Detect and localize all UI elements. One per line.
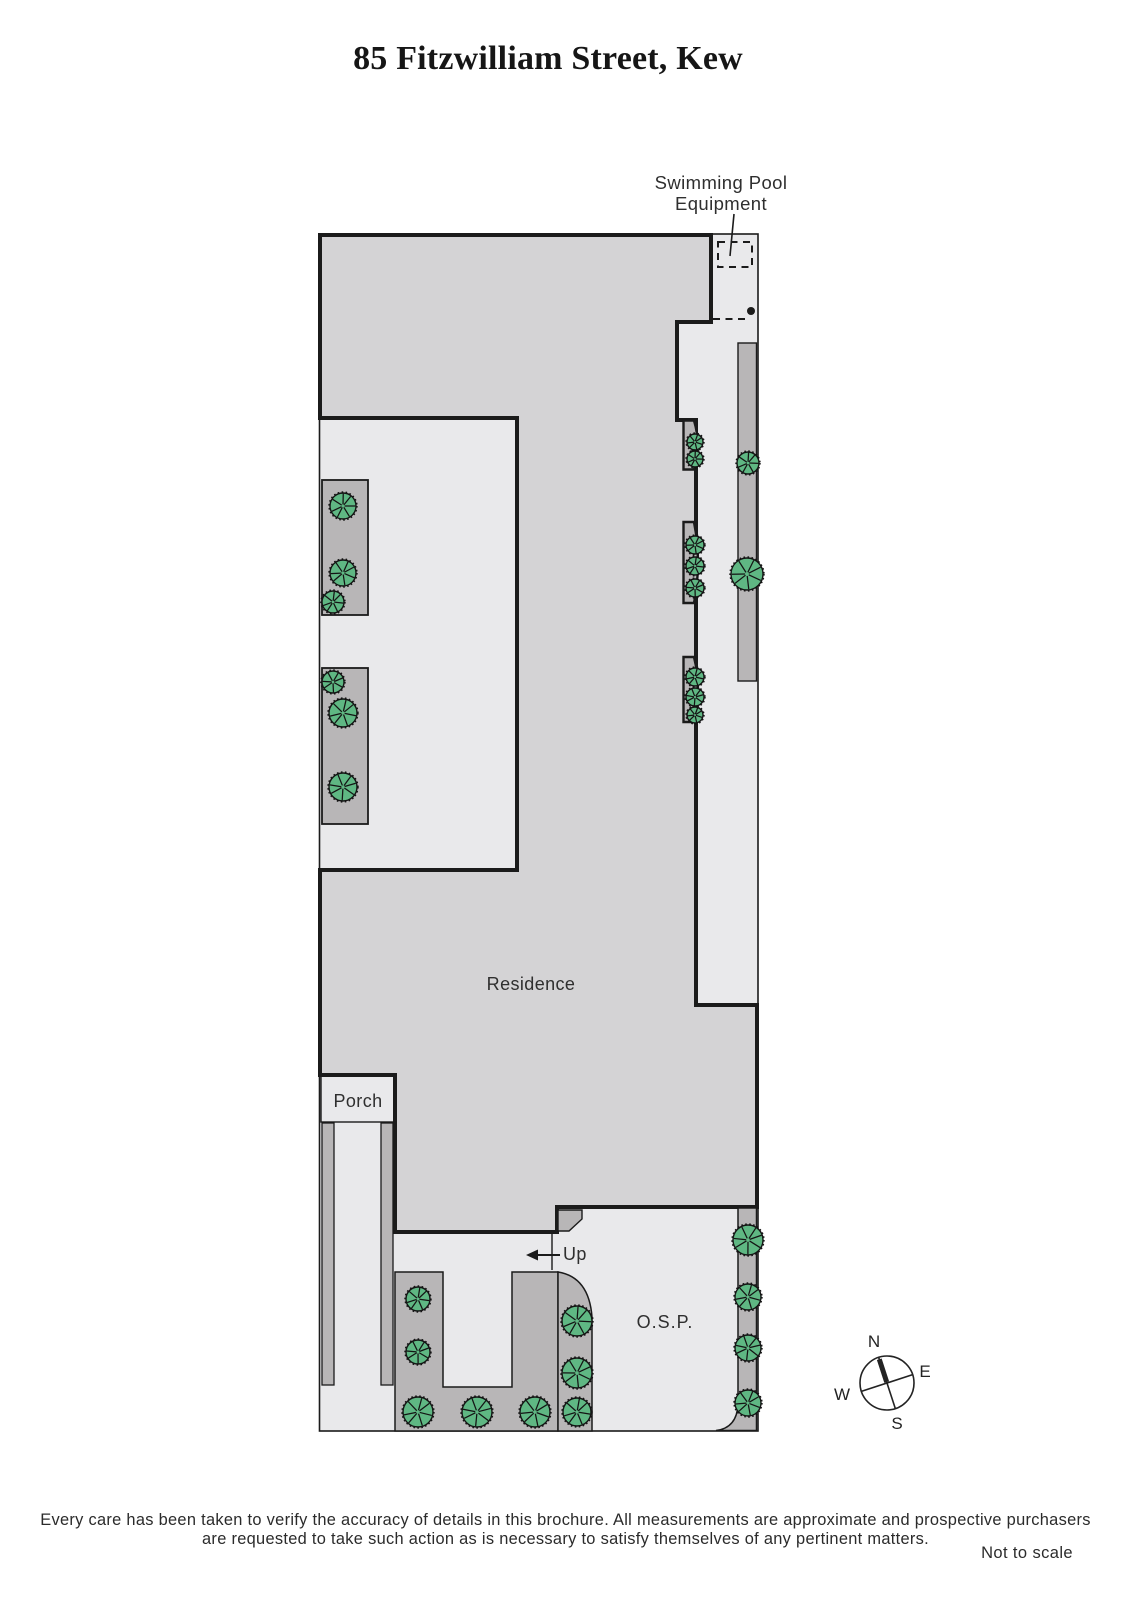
porch-label: Porch bbox=[333, 1091, 382, 1112]
site-plan bbox=[0, 0, 1131, 1600]
brochure-page: 85 Fitzwilliam Street, Kew bbox=[0, 0, 1131, 1600]
pool-equipment-label: Swimming Pool Equipment bbox=[655, 172, 788, 214]
not-to-scale-note: Not to scale bbox=[898, 1544, 1073, 1563]
walkway-strip-east bbox=[381, 1123, 393, 1385]
walkway-strip-west bbox=[322, 1123, 334, 1385]
compass-rose bbox=[853, 1349, 921, 1417]
pool-equipment-label-line2: Equipment bbox=[655, 193, 788, 214]
east-garden-strip bbox=[738, 343, 757, 681]
up-label: Up bbox=[563, 1244, 587, 1265]
compass-label-e: E bbox=[919, 1362, 930, 1382]
osp-label: O.S.P. bbox=[637, 1312, 694, 1333]
residence-label: Residence bbox=[487, 974, 576, 995]
compass-label-s: S bbox=[891, 1414, 902, 1434]
compass-label-n: N bbox=[868, 1332, 880, 1352]
compass-label-w: W bbox=[834, 1385, 850, 1405]
pool-equipment-label-line1: Swimming Pool bbox=[655, 172, 788, 193]
service-point-dot bbox=[747, 307, 755, 315]
disclaimer-line1: Every care has been taken to verify the … bbox=[0, 1511, 1131, 1530]
compass-north-needle bbox=[879, 1359, 886, 1382]
